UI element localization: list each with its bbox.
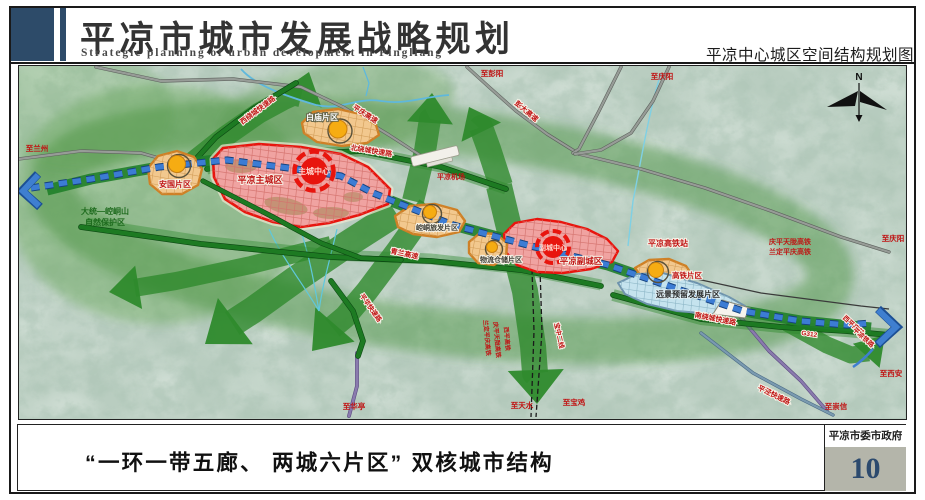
svg-text:物流仓储片区: 物流仓储片区 (480, 255, 522, 264)
svg-text:安国片区: 安国片区 (159, 179, 191, 189)
svg-text:庆平天陇高铁: 庆平天陇高铁 (768, 237, 811, 246)
svg-text:平凉机场: 平凉机场 (437, 172, 465, 181)
svg-text:高铁片区: 高铁片区 (672, 270, 702, 280)
svg-text:远景预留发展片区: 远景预留发展片区 (656, 289, 720, 299)
svg-text:至兰州: 至兰州 (26, 143, 49, 153)
svg-text:大统—崆峒山: 大统—崆峒山 (81, 206, 129, 216)
svg-text:崆峒旅发片区: 崆峒旅发片区 (416, 223, 458, 232)
svg-text:至崇信: 至崇信 (825, 401, 848, 411)
svg-text:兰定平庆高铁: 兰定平庆高铁 (769, 247, 811, 256)
svg-text:平凉高铁站: 平凉高铁站 (648, 238, 688, 248)
svg-text:至华亭: 至华亭 (343, 401, 366, 411)
svg-text:至宝鸡: 至宝鸡 (563, 397, 586, 407)
svg-text:自然保护区: 自然保护区 (85, 217, 125, 227)
svg-text:平凉主城区: 平凉主城区 (237, 174, 282, 185)
svg-text:白庙片区: 白庙片区 (306, 112, 338, 122)
svg-text:主城中心: 主城中心 (298, 166, 330, 176)
svg-text:至彭阳: 至彭阳 (481, 68, 504, 78)
svg-text:副城中心: 副城中心 (539, 243, 567, 252)
svg-text:至西安: 至西安 (880, 368, 903, 378)
svg-text:平凉副城区: 平凉副城区 (560, 256, 603, 266)
svg-text:至庆阳: 至庆阳 (882, 233, 905, 243)
svg-text:至天水: 至天水 (511, 400, 534, 410)
svg-text:至庆阳: 至庆阳 (651, 71, 674, 81)
svg-text:N: N (855, 72, 862, 83)
